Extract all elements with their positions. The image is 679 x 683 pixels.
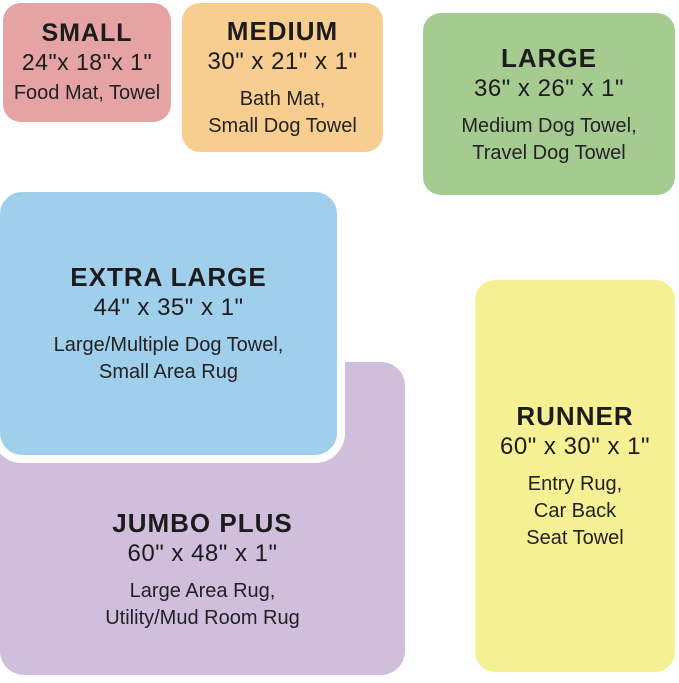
use-line: Entry Rug,: [475, 471, 675, 498]
size-uses: Food Mat, Towel: [3, 80, 171, 107]
size-card-small-content: SMALL 24"x 18"x 1" Food Mat, Towel: [3, 18, 171, 107]
size-card-extra-large: EXTRA LARGE 44" x 35" x 1" Large/Multipl…: [0, 184, 345, 463]
size-uses: Entry Rug, Car Back Seat Towel: [475, 471, 675, 552]
use-line: Small Area Rug: [0, 359, 337, 386]
use-line: Medium Dog Towel,: [423, 113, 675, 140]
size-card-medium-content: MEDIUM 30" x 21" x 1" Bath Mat, Small Do…: [182, 15, 383, 140]
use-line: Small Dog Towel: [182, 113, 383, 140]
size-dimensions: 24"x 18"x 1": [3, 48, 171, 76]
size-card-extra-large-content: EXTRA LARGE 44" x 35" x 1" Large/Multipl…: [0, 261, 337, 386]
size-card-large: LARGE 36" x 26" x 1" Medium Dog Towel, T…: [423, 13, 675, 195]
use-line: Large Area Rug,: [0, 578, 405, 605]
size-card-runner-content: RUNNER 60" x 30" x 1" Entry Rug, Car Bac…: [475, 400, 675, 552]
size-title: JUMBO PLUS: [0, 507, 405, 539]
size-card-large-content: LARGE 36" x 26" x 1" Medium Dog Towel, T…: [423, 42, 675, 167]
size-card-runner: RUNNER 60" x 30" x 1" Entry Rug, Car Bac…: [475, 280, 675, 672]
size-title: MEDIUM: [182, 15, 383, 47]
size-card-small: SMALL 24"x 18"x 1" Food Mat, Towel: [3, 3, 171, 122]
size-card-medium: MEDIUM 30" x 21" x 1" Bath Mat, Small Do…: [182, 3, 383, 152]
size-title: RUNNER: [475, 400, 675, 432]
size-title: SMALL: [3, 18, 171, 48]
use-line: Food Mat, Towel: [3, 80, 171, 107]
size-dimensions: 36" x 26" x 1": [423, 74, 675, 104]
size-title: EXTRA LARGE: [0, 261, 337, 293]
use-line: Large/Multiple Dog Towel,: [0, 332, 337, 359]
use-line: Seat Towel: [475, 525, 675, 552]
size-uses: Large Area Rug, Utility/Mud Room Rug: [0, 578, 405, 632]
size-dimensions: 60" x 48" x 1": [0, 539, 405, 569]
use-line: Utility/Mud Room Rug: [0, 605, 405, 632]
size-dimensions: 30" x 21" x 1": [182, 47, 383, 77]
use-line: Bath Mat,: [182, 86, 383, 113]
size-dimensions: 44" x 35" x 1": [0, 293, 337, 323]
use-line: Car Back: [475, 498, 675, 525]
size-title: LARGE: [423, 42, 675, 74]
size-card-jumbo-plus-content: JUMBO PLUS 60" x 48" x 1" Large Area Rug…: [0, 463, 405, 675]
size-dimensions: 60" x 30" x 1": [475, 432, 675, 462]
size-uses: Bath Mat, Small Dog Towel: [182, 86, 383, 140]
size-chart: SMALL 24"x 18"x 1" Food Mat, Towel MEDIU…: [0, 0, 679, 683]
size-uses: Large/Multiple Dog Towel, Small Area Rug: [0, 332, 337, 386]
use-line: Travel Dog Towel: [423, 140, 675, 167]
size-uses: Medium Dog Towel, Travel Dog Towel: [423, 113, 675, 167]
